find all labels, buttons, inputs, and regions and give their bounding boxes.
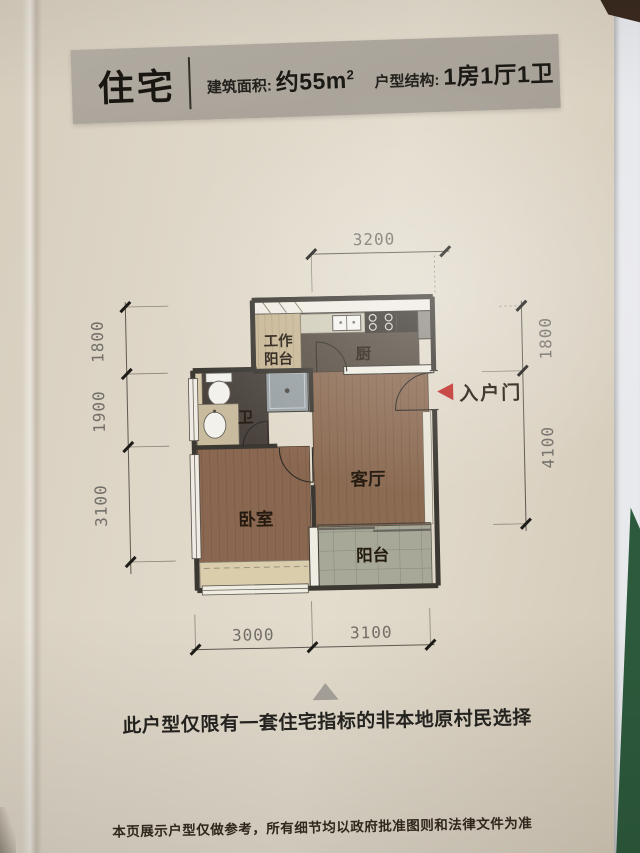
bedroom-label: 卧室: [238, 509, 273, 530]
dim-left: 1800 1900 3100: [87, 301, 176, 575]
dim-bottom-2: 3100: [350, 623, 393, 643]
dim-right-1: 1800: [536, 317, 556, 360]
stove: [365, 311, 397, 333]
kitchen-label: 厨: [355, 345, 371, 363]
living-label: 客厅: [349, 469, 386, 490]
bathroom-label: 卫: [238, 409, 254, 426]
kitchen-dark-counter: [396, 311, 418, 332]
toilet-icon: [208, 381, 230, 405]
fridge: [417, 311, 431, 339]
window-bedroom-left: [190, 455, 201, 559]
dim-left-1: 1800: [88, 320, 108, 363]
entrance-arrow-icon: [437, 383, 453, 400]
dim-bottom-1: 3000: [232, 625, 275, 645]
outer-wall-right: [432, 297, 438, 586]
wall-balcony-bath: [254, 370, 310, 371]
window-bay-bottom: [202, 584, 308, 595]
kitchen-bottom-wall: [344, 365, 434, 375]
living-room-texture: [312, 370, 431, 527]
photographed-page: 住宅 建筑面积: 约55m2 户型结构: 1房1厅1卫: [0, 0, 640, 853]
balcony-left-pier: [309, 527, 319, 588]
basin-icon: [204, 412, 227, 438]
dim-right-2: 4100: [538, 426, 558, 469]
page-content: 住宅 建筑面积: 约55m2 户型结构: 1房1厅1卫: [0, 0, 640, 853]
dim-left-2: 1900: [89, 390, 109, 433]
up-triangle-icon: [312, 683, 338, 701]
entrance-jambs: [430, 371, 439, 410]
dim-left-3: 3100: [91, 484, 111, 527]
bedroom-texture: [197, 446, 311, 562]
window-bath-left: [188, 379, 198, 441]
work-balcony-label-1: 工作: [263, 332, 293, 351]
balcony-label: 阳台: [356, 545, 389, 566]
wall-bath-bedroom: [194, 446, 277, 448]
dim-top: 3200: [306, 228, 451, 296]
entrance-label: 入户门: [459, 381, 522, 405]
dim-right: 1800 4100: [480, 300, 559, 531]
work-balcony-label-2: 阳台: [264, 350, 293, 369]
dim-top-value: 3200: [353, 229, 396, 249]
dim-bottom: 3000 3100: [190, 599, 436, 655]
bottom-left-shadow: [0, 807, 16, 853]
